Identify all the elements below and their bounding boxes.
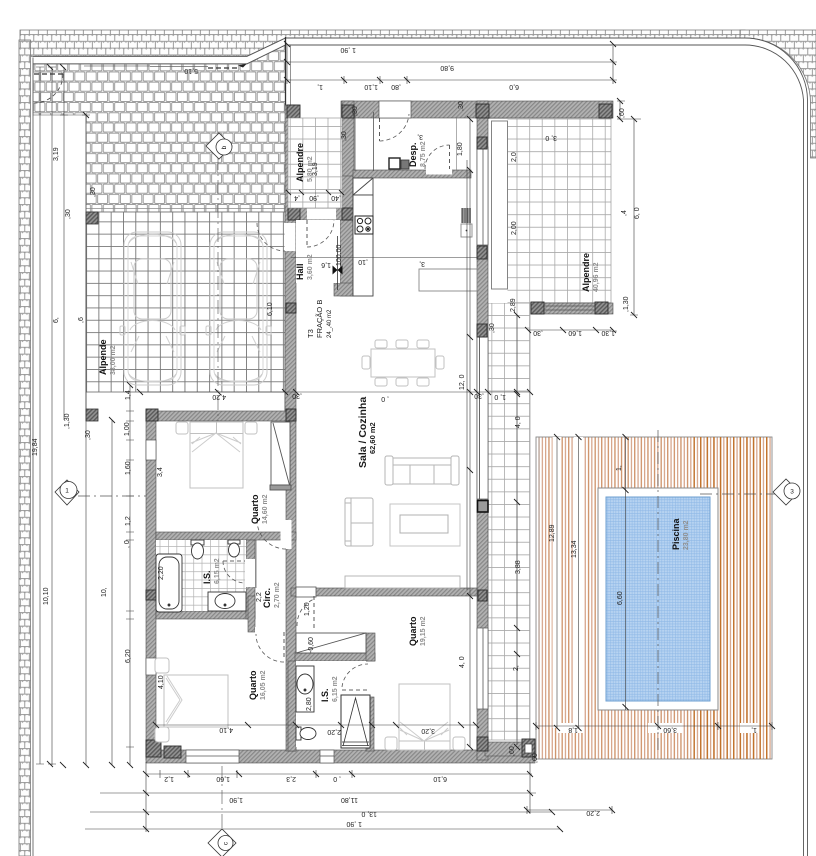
svg-text:3,88: 3,88 [515, 560, 522, 574]
svg-text:3,60: 3,60 [663, 726, 677, 733]
svg-text:4,10: 4,10 [158, 675, 165, 689]
svg-text:1,: 1, [751, 726, 757, 733]
svg-text:Circ.: Circ. [262, 588, 272, 608]
svg-text:,30: ,30 [65, 209, 72, 219]
svg-text:2,2: 2,2 [256, 592, 263, 602]
svg-text:1 ,90: 1 ,90 [340, 46, 356, 53]
svg-text:,30: ,30 [474, 392, 484, 399]
svg-text:14,60 m2: 14,60 m2 [262, 494, 269, 524]
svg-text:Hall: Hall [295, 263, 305, 280]
svg-text:,30: ,30 [85, 430, 92, 440]
svg-text:6,60: 6,60 [617, 591, 624, 605]
svg-text:10,10: 10,10 [43, 587, 50, 605]
svg-text:3,60 m2: 3,60 m2 [307, 254, 314, 280]
svg-text:,60: ,60 [619, 108, 626, 118]
svg-text:, 0: , 0 [124, 540, 131, 548]
svg-text:1,2: 1,2 [125, 516, 132, 526]
svg-text:Quarto: Quarto [408, 616, 418, 646]
svg-text:1,4: 1,4 [125, 390, 132, 400]
svg-text:6,15 m2: 6,15 m2 [332, 676, 339, 702]
svg-text:,4: ,4 [621, 210, 628, 216]
svg-text:2,89: 2,89 [510, 298, 517, 312]
svg-text:2,20: 2,20 [158, 566, 165, 580]
svg-text:2,20: 2,20 [327, 728, 341, 735]
svg-text:6,10: 6,10 [267, 302, 274, 316]
svg-text:62,60 m2: 62,60 m2 [368, 422, 377, 454]
svg-text:3: 3 [790, 489, 794, 496]
svg-text:4,20: 4,20 [212, 393, 226, 400]
svg-text:,30: ,30 [458, 101, 465, 111]
svg-text:,30: ,30 [90, 187, 97, 197]
svg-text:4,10: 4,10 [219, 726, 233, 733]
svg-text:100.00: 100.00 [336, 244, 343, 266]
svg-text:16,05 m2: 16,05 m2 [260, 670, 267, 700]
svg-text:,1,30: ,1,30 [64, 413, 71, 429]
svg-text:6,15 m2: 6,15 m2 [214, 558, 221, 584]
svg-text:,30: ,30 [533, 329, 543, 336]
svg-text:,4: ,4 [294, 194, 300, 201]
svg-text:Desp.: Desp. [408, 142, 418, 167]
svg-text:1,: 1, [317, 83, 323, 90]
svg-text:, 0: , 0 [381, 395, 389, 402]
svg-text:1,80: 1,80 [457, 142, 464, 156]
svg-text:3,: 3, [419, 260, 425, 267]
svg-text:T3: T3 [306, 329, 315, 338]
svg-text:2,0: 2,0 [511, 152, 518, 162]
svg-text:Quarto: Quarto [250, 494, 260, 524]
svg-text:-0,60: -0,60 [308, 637, 315, 653]
svg-text:,60: ,60 [532, 753, 539, 763]
svg-text:,1,8: ,1,8 [568, 726, 580, 733]
svg-text:40,96 m2: 40,96 m2 [593, 262, 600, 292]
svg-text:I.S.: I.S. [202, 570, 212, 584]
svg-text:1,2: 1,2 [164, 775, 174, 782]
svg-text:6, 0: 6, 0 [634, 207, 641, 219]
svg-text:12, 0: 12, 0 [459, 374, 466, 390]
svg-text:12,89: 12,89 [549, 524, 556, 542]
svg-text:5,10: 5,10 [184, 67, 198, 74]
svg-text:1: 1 [65, 488, 69, 495]
svg-text:,30: ,30 [352, 106, 359, 116]
svg-text:1,: 1, [616, 465, 623, 471]
svg-text:3,19: 3,19 [53, 147, 60, 161]
svg-text:24_,40 m2: 24_,40 m2 [327, 309, 333, 338]
svg-text:11,80: 11,80 [341, 796, 358, 803]
svg-text:,6: ,6 [78, 317, 85, 323]
svg-text:1,20: 1,20 [304, 602, 311, 616]
svg-text:,80: ,80 [391, 83, 401, 90]
svg-text:9,80: 9,80 [440, 64, 454, 71]
svg-text:1,90: 1,90 [229, 796, 243, 803]
svg-text:, 0: , 0 [333, 775, 341, 782]
svg-text:3, 0: 3, 0 [545, 134, 557, 141]
svg-text:6,0: 6,0 [509, 83, 519, 90]
svg-text:2,70 m2: 2,70 m2 [274, 582, 281, 608]
svg-text:b: b [221, 145, 228, 149]
svg-text:,1,30: ,1,30 [601, 329, 617, 336]
svg-text:2,00: 2,00 [511, 221, 518, 235]
svg-text:19,84: 19,84 [32, 438, 39, 456]
svg-text:10,: 10, [101, 587, 108, 597]
svg-text:4, 0: 4, 0 [459, 656, 466, 668]
svg-text:6,: 6, [53, 317, 60, 323]
svg-text:FRAÇÃO B: FRAÇÃO B [315, 300, 324, 338]
svg-text:1,60: 1,60 [568, 329, 582, 336]
svg-text:1,00: 1,00 [124, 422, 131, 436]
svg-text:,40: ,40 [331, 194, 341, 201]
svg-text:13,34: 13,34 [571, 540, 578, 558]
svg-text:2,3: 2,3 [286, 775, 296, 782]
svg-text:Alpendre: Alpendre [581, 253, 591, 292]
svg-text:,1,30: ,1,30 [623, 296, 630, 312]
svg-text:3,: 3, [417, 133, 423, 140]
svg-text:,30: ,30 [341, 131, 348, 141]
svg-text:Alpendre: Alpendre [295, 143, 305, 182]
svg-text:4, 0: 4, 0 [515, 416, 522, 428]
svg-text:2,: 2, [513, 665, 520, 671]
svg-text:I.S.: I.S. [320, 688, 330, 702]
svg-text:38,00 m2: 38,00 m2 [110, 345, 117, 375]
svg-text:Quarto: Quarto [248, 670, 258, 700]
svg-text:,90: ,90 [309, 194, 319, 201]
svg-text:,60: ,60 [509, 746, 516, 756]
svg-text:1,60: 1,60 [216, 775, 230, 782]
svg-text:,10: ,10 [358, 258, 368, 265]
svg-text:,30: ,30 [292, 392, 302, 399]
svg-text:1,60: 1,60 [125, 461, 132, 475]
svg-text:Alpende: Alpende [98, 339, 108, 375]
svg-text:,30: ,30 [489, 323, 496, 333]
svg-text:8,75 m2: 8,75 m2 [420, 141, 427, 167]
svg-text:1, 0: 1, 0 [494, 393, 506, 400]
svg-text:1,10: 1,10 [364, 83, 378, 90]
svg-text:2,20: 2,20 [586, 809, 600, 816]
svg-text:13, 0: 13, 0 [361, 810, 377, 817]
svg-text:1,6: 1,6 [321, 261, 331, 268]
svg-text:19,15 m2: 19,15 m2 [420, 616, 427, 646]
svg-text:3,20: 3,20 [421, 727, 435, 734]
svg-text:3,19: 3,19 [312, 162, 319, 176]
svg-text:Piscina: Piscina [671, 517, 681, 550]
svg-text:3,4: 3,4 [157, 467, 164, 477]
svg-text:23,80 m2: 23,80 m2 [683, 520, 690, 550]
svg-text:1 ,90: 1 ,90 [346, 820, 362, 827]
svg-text:6,10: 6,10 [433, 775, 447, 782]
svg-text:6,20: 6,20 [125, 649, 132, 663]
svg-text:2,80: 2,80 [306, 697, 313, 711]
